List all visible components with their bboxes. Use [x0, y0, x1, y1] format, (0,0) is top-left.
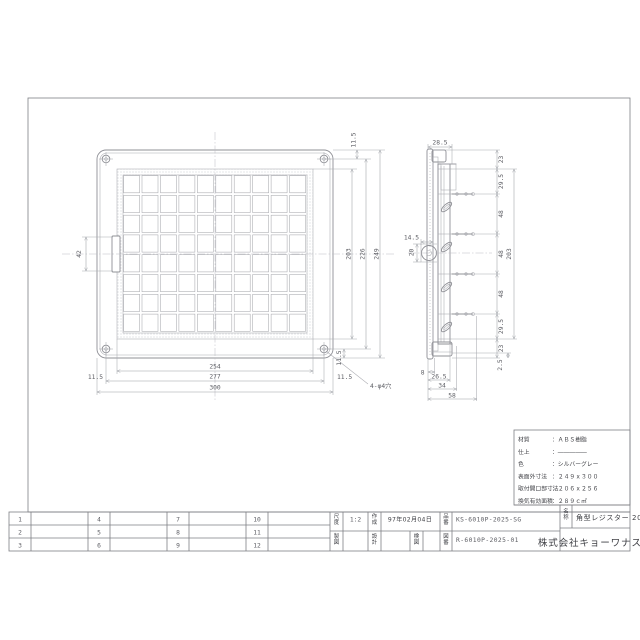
revision-number: 7 — [176, 517, 180, 524]
dim-edge-offset-right: 11.5 — [337, 374, 352, 381]
spec-box: 材質：ＡＢＳ樹脂仕上：―――――色：シルバーグレー表面外寸法：２４９ｘ３００取付… — [514, 430, 630, 505]
revision-table: 123456789101112 — [9, 512, 330, 551]
front-view — [62, 132, 394, 402]
mounting-clips — [438, 193, 475, 334]
spec-value: ：シルバーグレー — [552, 460, 599, 468]
title-block: 123456789101112 尺度 1:2 作成 97年02月04日 品番 K… — [9, 505, 640, 551]
dwg-no-label: 図番 — [443, 533, 449, 546]
bottom-dim-label: 8 — [421, 370, 425, 377]
dim-panel-width: 300 — [209, 385, 221, 392]
chain-dim-label: 23 — [498, 156, 505, 164]
revision-number: 10 — [253, 517, 261, 524]
dim-grille-height: 203 — [346, 248, 353, 260]
spec-value: ：ＡＢＳ樹脂 — [552, 436, 587, 444]
bottom-dim-label: 26.5 — [431, 374, 446, 381]
screw-hole — [99, 152, 113, 166]
revision-number: 1 — [18, 517, 22, 524]
design-label: 設計 — [372, 532, 378, 546]
spec-label: 色 — [518, 460, 524, 468]
dwg-no-value: R-6010P-2025-01 — [456, 537, 519, 544]
revision-number: 5 — [97, 530, 101, 537]
dim-edge-offset-left: 11.5 — [88, 374, 103, 381]
revision-number: 3 — [18, 543, 22, 550]
dim-notch-height: 42 — [76, 250, 83, 258]
dim-latch-height: 20 — [409, 249, 416, 257]
scale-value: 1:2 — [350, 517, 362, 524]
spec-value: ：２４９ｘ３００ — [552, 473, 598, 480]
dim-edge-offset-bottom-right: 11.5 — [336, 350, 343, 365]
revision-number: 12 — [253, 543, 261, 550]
holes-note: 4-φ4穴 — [370, 381, 392, 390]
dim-hole-span-width: 277 — [209, 374, 221, 381]
mounting-clip — [438, 273, 475, 294]
revision-number: 2 — [18, 530, 22, 537]
bottom-dim-label: 58 — [448, 393, 456, 400]
created-label: 作成 — [372, 512, 378, 526]
mounting-clip — [438, 313, 475, 334]
chain-dim-label: 48 — [498, 290, 505, 298]
dim-edge-offset-top: 11.5 — [351, 132, 358, 147]
product-name: 角型レジスター 200x250 — [576, 513, 640, 522]
name-label: 名称 — [563, 507, 569, 521]
revision-number: 11 — [253, 530, 261, 537]
spec-label: 仕上 — [518, 448, 530, 456]
bottom-dim-label: 34 — [438, 383, 446, 390]
spec-value: ：――――― — [552, 450, 587, 456]
company-name: 株式会社キョーワナスタ — [538, 537, 640, 549]
dim-grille-width: 254 — [209, 364, 221, 371]
spec-value: ：２０６ｘ２５６ — [552, 486, 598, 493]
side-panel-body — [433, 157, 438, 351]
part-no-label: 品番 — [443, 513, 449, 526]
side-upper-block — [441, 164, 456, 190]
side-bottom-chain: 826.53458 — [421, 370, 477, 400]
dim-side-top-width: 28.5 — [432, 140, 447, 147]
spec-label: 換気有効面積 — [518, 497, 553, 505]
side-view — [408, 149, 492, 359]
chain-dim-label: 48 — [498, 250, 505, 258]
chain-dim-label: 29.5 — [498, 174, 505, 189]
spec-value: ：２８９ｃ㎡ — [552, 497, 587, 505]
draft-label: 製図 — [334, 532, 340, 546]
created-date: 97年02月04日 — [388, 516, 432, 524]
mounting-clip — [438, 193, 475, 214]
spec-label: 材質 — [518, 436, 530, 444]
dim-hole-span-height: 226 — [360, 248, 367, 260]
spec-label: 表面外寸法 — [518, 472, 547, 480]
side-top-cap — [432, 150, 446, 162]
chain-dim-label: 23 — [498, 345, 505, 353]
part-no-value: KS-6010P-2025-SG — [456, 517, 521, 524]
cad-drawing-sheet: 254 277 300 11.5 11.5 203 226 249 11.5 1… — [0, 0, 640, 640]
spec-rows: 材質：ＡＢＳ樹脂仕上：―――――色：シルバーグレー表面外寸法：２４９ｘ３００取付… — [518, 436, 599, 506]
chain-dim-label: 48 — [498, 210, 505, 218]
dim-panel-height: 249 — [374, 248, 381, 260]
dim-latch-depth: 14.5 — [404, 235, 419, 242]
revision-number: 6 — [97, 543, 101, 550]
revision-number: 4 — [97, 517, 101, 524]
revision-number: 9 — [176, 543, 180, 550]
check-label: 検図 — [414, 532, 420, 546]
dim-side-inner-height: 203 — [506, 248, 513, 260]
revision-number: 8 — [176, 530, 180, 537]
dim-side-lip: 2.5 — [497, 359, 504, 371]
chain-dim-label: 29.5 — [498, 319, 505, 334]
scale-label: 尺度 — [334, 513, 340, 526]
mounting-clip — [438, 233, 475, 254]
